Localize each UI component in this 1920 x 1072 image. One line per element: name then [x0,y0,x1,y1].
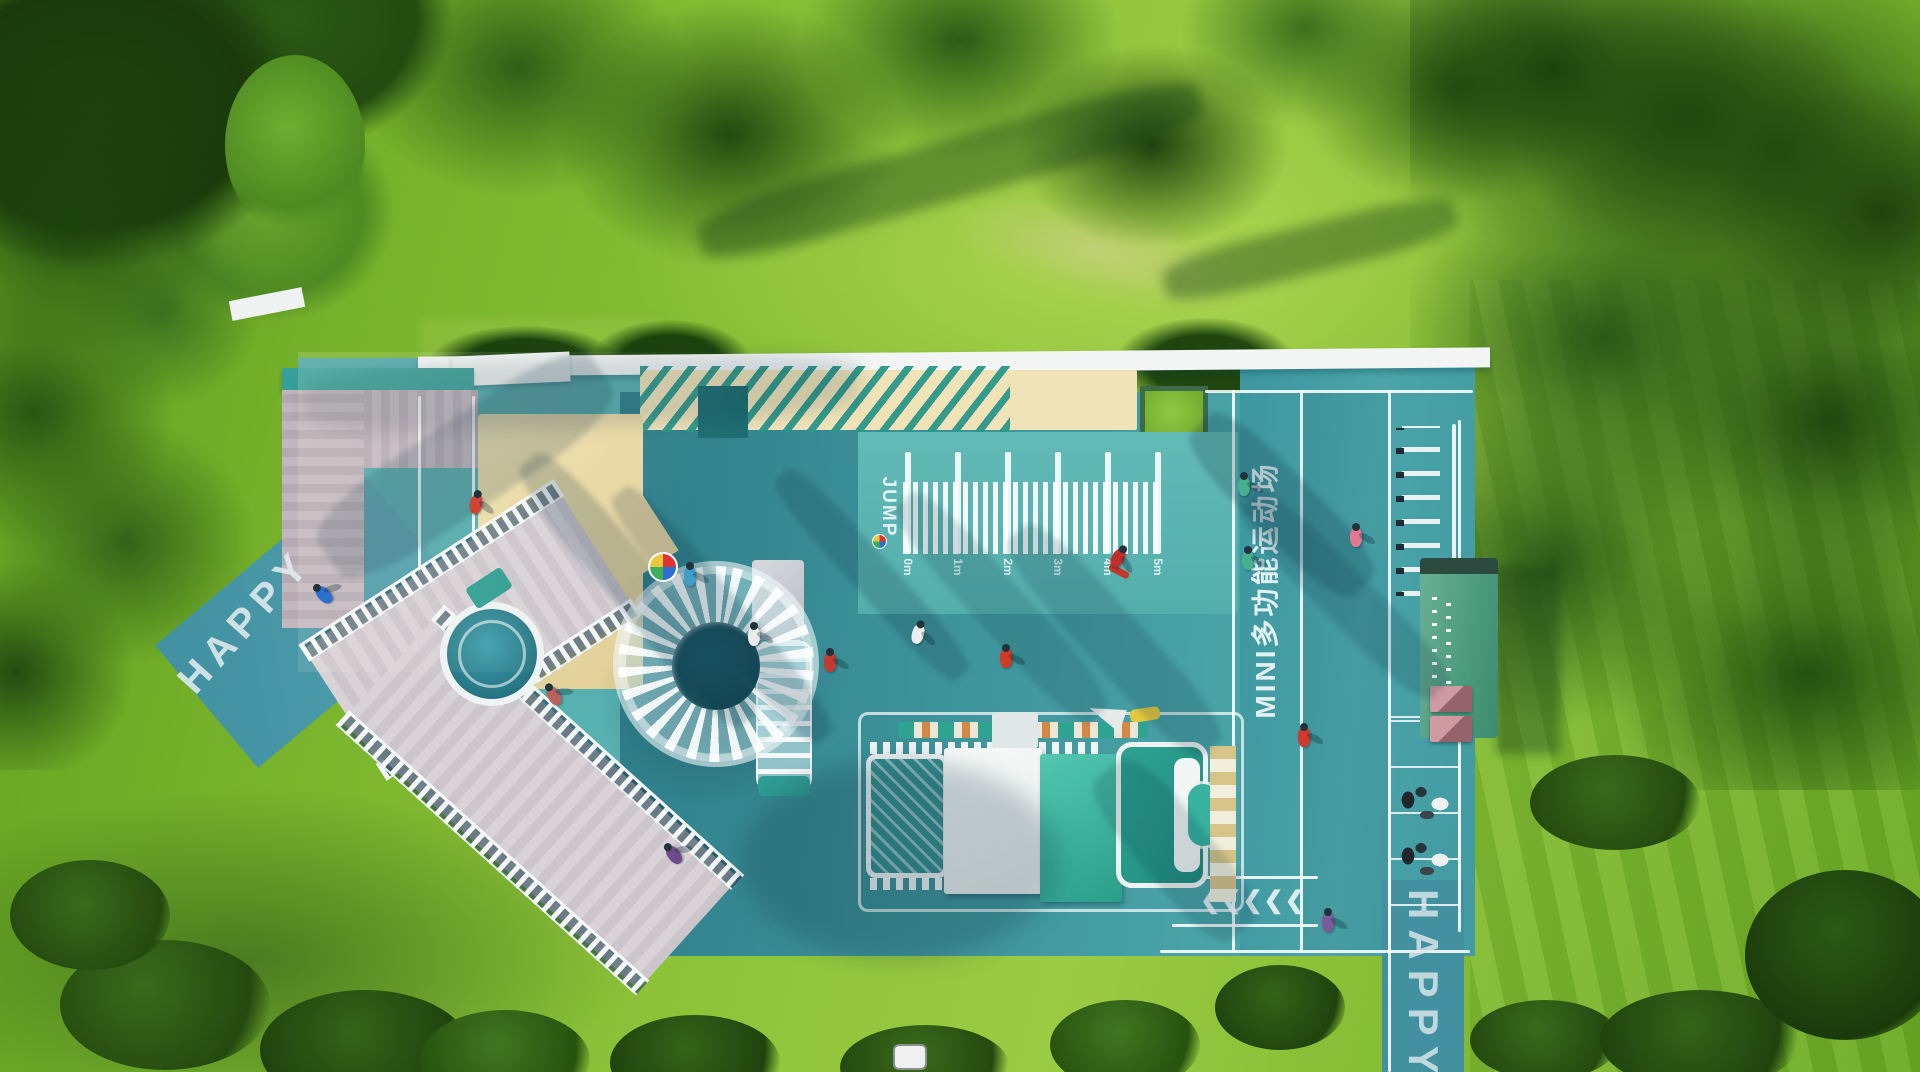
picnic-table [1430,716,1472,742]
bush [1470,1000,1620,1072]
lane-line-b [1300,390,1303,952]
person-figure [824,652,836,672]
person-figure [1242,550,1254,570]
happy-text-right: HAPPY [1395,889,1447,1072]
pavilion-shadow [1496,566,1560,754]
rainbow-umbrella [648,552,678,582]
bush [10,860,170,970]
lane-line-top [1205,390,1473,393]
person-figure [684,566,696,586]
aerial-playground-scene: 0m 1m 2m 3m 4m 5m JUMP ❮❮❮❮❮ MINI多功能运动场 [0,0,1920,1072]
sun-glare [298,352,938,672]
truck-step-box [992,712,1038,748]
bright-tree-highlight [225,55,365,235]
exercise-machine [1396,782,1456,826]
ruler-major-tick [1155,452,1161,554]
lane-tint [1300,392,1388,952]
exercise-machine [1396,838,1456,882]
ruler-major-tick [1105,452,1111,554]
bush [1215,965,1345,1050]
person-figure [1322,912,1334,932]
person-figure [1238,476,1250,496]
person-figure [748,626,760,646]
ruler-tick-label: 5m [1151,556,1165,578]
bush [1530,755,1700,850]
canopy-shadow-blob [740,760,1060,960]
person-figure [1350,527,1362,547]
person-figure [1000,648,1012,668]
person-figure [1298,727,1310,747]
white-object-bottom [893,1044,927,1070]
